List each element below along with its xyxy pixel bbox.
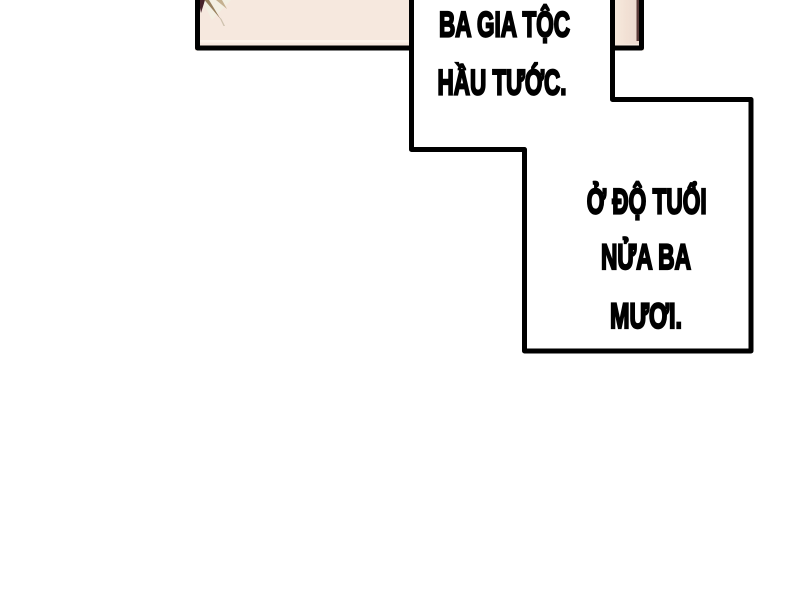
svg-text:BA GIA TỘC: BA GIA TỘC	[439, 4, 570, 44]
svg-text:MƯƠI.: MƯƠI.	[610, 297, 682, 336]
svg-text:HẦU TƯỚC.: HẦU TƯỚC.	[438, 63, 567, 103]
svg-text:Ở ĐỘ TUỔI: Ở ĐỘ TUỔI	[587, 181, 707, 221]
svg-text:NỬA BA: NỬA BA	[601, 237, 691, 277]
